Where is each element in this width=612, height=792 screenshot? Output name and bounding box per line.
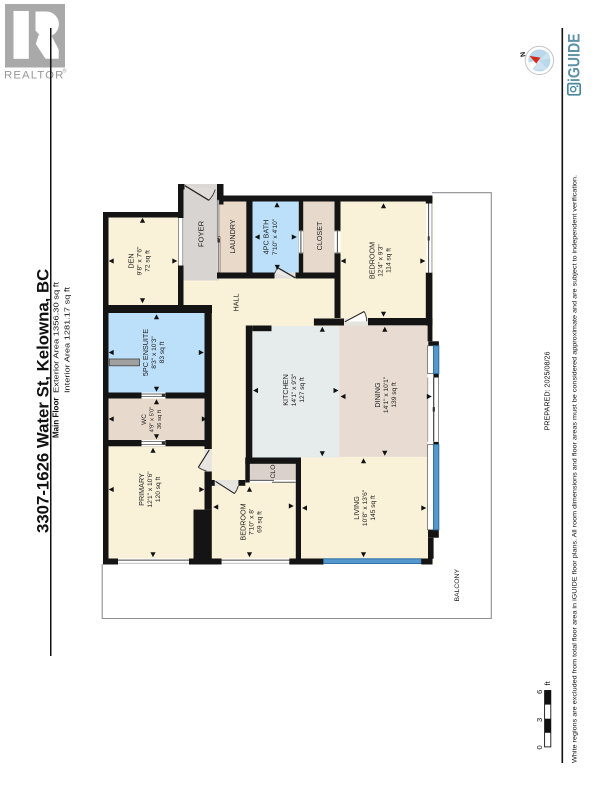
svg-text:0: 0 xyxy=(535,745,544,749)
svg-text:3307-1626 Water St, Kelowna, B: 3307-1626 Water St, Kelowna, BC xyxy=(34,269,53,533)
svg-text:LIVING: LIVING xyxy=(352,496,361,520)
svg-text:4PC BATH: 4PC BATH xyxy=(262,220,271,255)
svg-text:N: N xyxy=(520,51,528,57)
svg-text:BEDROOM: BEDROOM xyxy=(367,242,376,279)
svg-text:REALTOR: REALTOR xyxy=(4,70,64,82)
svg-text:WC: WC xyxy=(141,414,148,425)
svg-text:7'10" x 4'10": 7'10" x 4'10" xyxy=(272,218,279,255)
svg-text:14'1" x 10'1": 14'1" x 10'1" xyxy=(383,376,390,413)
svg-text:iGUIDE: iGUIDE xyxy=(565,34,584,83)
svg-text:9'8" x 7'6": 9'8" x 7'6" xyxy=(137,246,144,275)
svg-text:139 sq ft: 139 sq ft xyxy=(391,382,398,407)
svg-text:114 sq ft: 114 sq ft xyxy=(386,248,393,273)
svg-text:Main Floor: Main Floor xyxy=(52,398,61,438)
svg-text:ft: ft xyxy=(543,680,552,685)
svg-text:4'9" x 5'0": 4'9" x 5'0" xyxy=(150,407,156,433)
svg-text:10'8" x 13'6": 10'8" x 13'6" xyxy=(362,489,369,526)
svg-text:KITCHEN: KITCHEN xyxy=(281,374,290,406)
svg-text:®: ® xyxy=(63,68,67,75)
svg-text:Interior Area 1281.17 sq ft: Interior Area 1281.17 sq ft xyxy=(63,286,72,393)
svg-text:12'4" x 9'3": 12'4" x 9'3" xyxy=(378,244,385,277)
svg-text:BALCONY: BALCONY xyxy=(454,569,461,602)
svg-text:PRIMARY: PRIMARY xyxy=(137,473,146,506)
svg-text:127 sq ft: 127 sq ft xyxy=(299,377,306,402)
svg-text:3: 3 xyxy=(535,718,544,722)
svg-text:White regions are excluded fro: White regions are excluded from total fl… xyxy=(572,175,579,763)
svg-text:LAUNDRY: LAUNDRY xyxy=(228,219,237,253)
svg-text:FOYER: FOYER xyxy=(197,220,206,247)
svg-text:BEDROOM: BEDROOM xyxy=(238,503,247,540)
svg-text:6: 6 xyxy=(535,690,544,694)
svg-text:83 sq ft: 83 sq ft xyxy=(159,342,166,364)
svg-text:Exterior Area 1356.30 sq ft: Exterior Area 1356.30 sq ft xyxy=(52,281,61,393)
svg-text:145 sq ft: 145 sq ft xyxy=(370,495,377,520)
svg-text:72 sq ft: 72 sq ft xyxy=(145,250,152,272)
svg-text:120 sq ft: 120 sq ft xyxy=(155,477,162,502)
svg-text:PREPARED: 2025/08/26: PREPARED: 2025/08/26 xyxy=(543,352,552,431)
svg-text:14'1" x 9'3": 14'1" x 9'3" xyxy=(291,373,298,406)
svg-text:DEN: DEN xyxy=(126,253,135,268)
svg-text:DINING: DINING xyxy=(373,382,382,408)
svg-text:5PC ENSUITE: 5PC ENSUITE xyxy=(141,329,150,376)
svg-text:7'10" x 8': 7'10" x 8' xyxy=(249,509,256,536)
svg-text:12'1" x 10'6": 12'1" x 10'6" xyxy=(147,471,154,508)
svg-text:36 sq ft: 36 sq ft xyxy=(157,409,163,429)
svg-text:CLO: CLO xyxy=(270,465,277,479)
svg-text:8'3" x 10'3": 8'3" x 10'3" xyxy=(151,336,158,369)
svg-text:69 sq ft: 69 sq ft xyxy=(257,511,264,533)
svg-text:HALL: HALL xyxy=(232,294,241,312)
svg-text:CLOSET: CLOSET xyxy=(315,221,324,250)
